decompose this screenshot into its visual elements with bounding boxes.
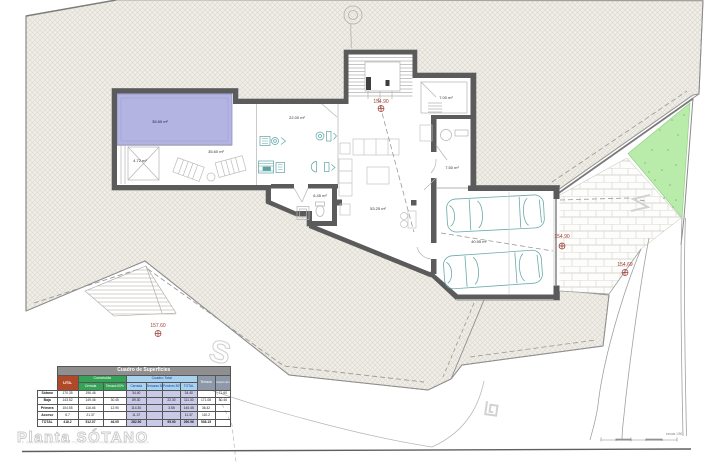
svg-text:154.90: 154.90 bbox=[554, 234, 570, 240]
svg-text:53.25 m²: 53.25 m² bbox=[370, 206, 386, 211]
svg-text:154.90: 154.90 bbox=[373, 99, 389, 105]
svg-text:escala 1/50: escala 1/50 bbox=[666, 432, 683, 436]
svg-text:35.60 m²: 35.60 m² bbox=[152, 119, 168, 124]
svg-text:157.60: 157.60 bbox=[150, 323, 166, 329]
svg-text:6.45 m²: 6.45 m² bbox=[313, 193, 327, 198]
svg-text:7.50 m²: 7.50 m² bbox=[445, 165, 459, 170]
svg-text:4.72 m²: 4.72 m² bbox=[133, 158, 147, 163]
svg-text:154.69: 154.69 bbox=[617, 262, 633, 268]
svg-text:22.00 m²: 22.00 m² bbox=[289, 115, 305, 120]
svg-text:40.95 m²: 40.95 m² bbox=[471, 239, 487, 244]
svg-text:7.00 m²: 7.00 m² bbox=[439, 95, 453, 100]
svg-text:35.60 m²: 35.60 m² bbox=[208, 149, 224, 154]
